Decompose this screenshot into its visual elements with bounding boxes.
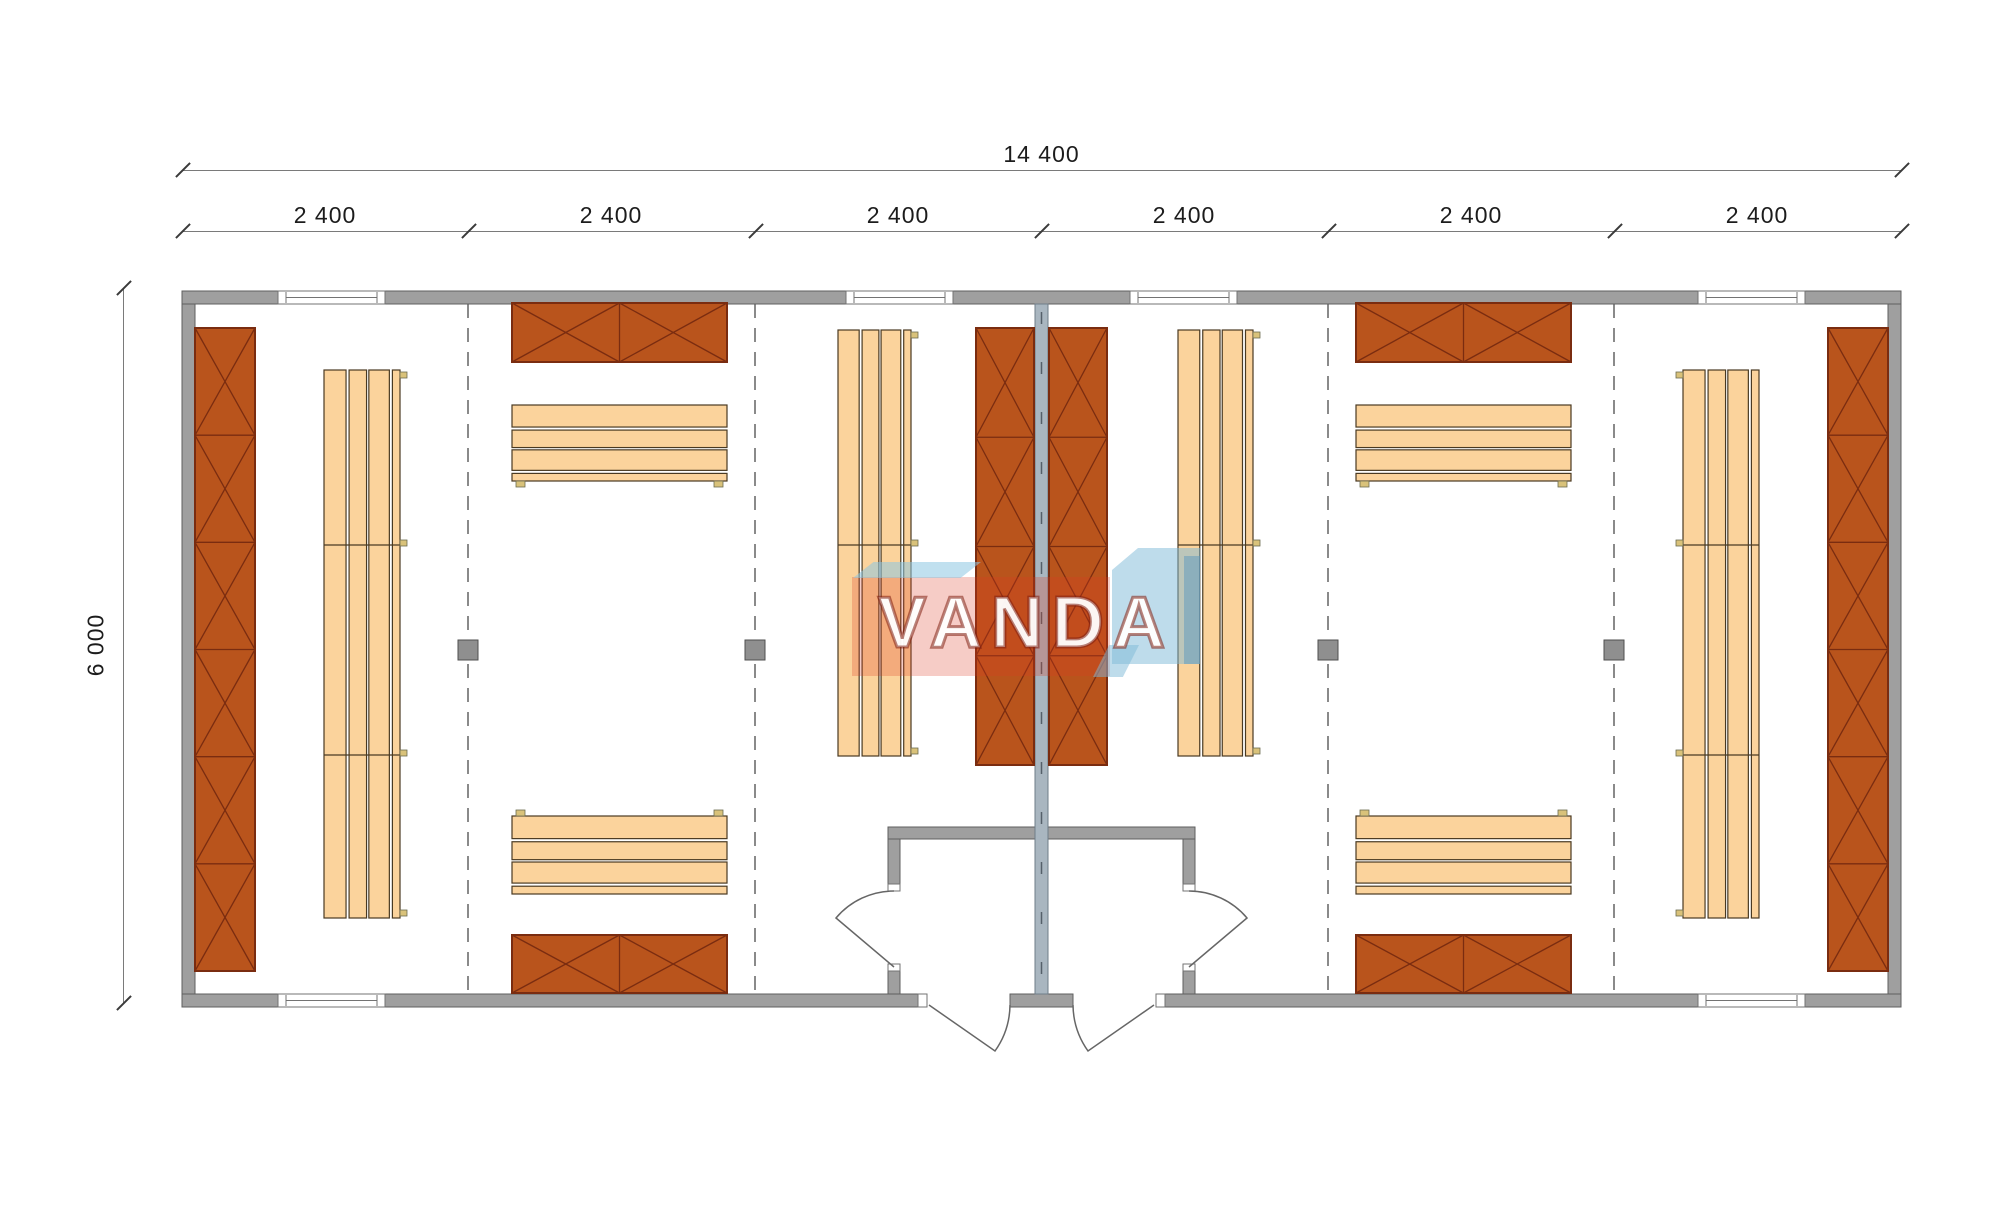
bench-slat — [1356, 450, 1571, 471]
bench-connector-tab — [1253, 332, 1260, 338]
bench-foot — [1360, 481, 1369, 487]
dimension-total-height-label: 6 000 — [83, 614, 110, 677]
bench-foot — [516, 810, 525, 816]
dimension-segment-label-6: 2 400 — [1614, 202, 1900, 229]
bench-slat — [349, 370, 366, 918]
column-post — [745, 640, 765, 660]
bench-slat — [881, 330, 901, 756]
bench-foot — [1558, 481, 1567, 487]
wall-segment — [182, 304, 195, 994]
bench-slat — [1222, 330, 1242, 756]
wall-segment — [1010, 994, 1073, 1007]
bench-slat — [862, 330, 879, 756]
door-swing — [1189, 891, 1247, 967]
dimension-segment-label-4: 2 400 — [1041, 202, 1327, 229]
bench-connector-tab — [911, 332, 918, 338]
dimension-segment-label-1: 2 400 — [182, 202, 468, 229]
bench-slat — [1356, 473, 1571, 481]
bench-connector-tab — [1676, 750, 1683, 756]
bench-slat — [1203, 330, 1220, 756]
bench-foot — [714, 481, 723, 487]
bench-slat — [1356, 816, 1571, 839]
bench-connector-tab — [1676, 372, 1683, 378]
bench-slat — [392, 370, 400, 918]
wall-segment — [1888, 304, 1901, 994]
bench-slat — [1246, 330, 1254, 756]
bench-slat — [1356, 405, 1571, 427]
door-swing — [929, 1005, 1010, 1051]
bench-slat — [1751, 370, 1759, 918]
wall-segment — [888, 839, 900, 884]
bench-foot — [1360, 810, 1369, 816]
dimension-segment-label-2: 2 400 — [468, 202, 754, 229]
bench-slat — [324, 370, 346, 918]
bench-connector-tab — [400, 540, 407, 546]
bench-slat — [1708, 370, 1725, 918]
bench-foot — [1558, 810, 1567, 816]
bench-slat — [512, 473, 727, 481]
bench-foot — [714, 810, 723, 816]
door-jamb — [888, 884, 900, 891]
bench-slat — [512, 816, 727, 839]
bench-slat — [1356, 430, 1571, 447]
column-post — [1604, 640, 1624, 660]
door-jamb — [1183, 964, 1195, 971]
bench-connector-tab — [1253, 540, 1260, 546]
partition-wall — [1035, 304, 1048, 994]
dimension-line-total-height — [123, 288, 124, 1003]
dimension-segment-label-5: 2 400 — [1328, 202, 1614, 229]
door-swing — [836, 891, 894, 967]
bench-slat — [512, 405, 727, 427]
bench-connector-tab — [1676, 540, 1683, 546]
wall-segment — [888, 971, 900, 994]
dimension-segment-label-3: 2 400 — [755, 202, 1041, 229]
door-jamb — [888, 964, 900, 971]
bench-slat — [838, 330, 859, 756]
bench-slat — [1356, 886, 1571, 894]
door-jamb — [1183, 884, 1195, 891]
bench-slat — [1178, 330, 1200, 756]
wall-segment — [1183, 971, 1195, 994]
bench-slat — [904, 330, 911, 756]
bench-slat — [512, 862, 727, 883]
bench-slat — [1683, 370, 1705, 918]
door-jamb — [918, 994, 927, 1007]
bench-slat — [1356, 842, 1571, 860]
bench-slat — [512, 430, 727, 447]
bench-slat — [1356, 862, 1571, 883]
wall-segment — [1183, 839, 1195, 884]
bench-connector-tab — [1253, 748, 1260, 754]
column-post — [458, 640, 478, 660]
bench-connector-tab — [400, 372, 407, 378]
bench-slat — [1728, 370, 1749, 918]
column-post — [1318, 640, 1338, 660]
floor-plan-canvas: 14 400 2 400 2 400 2 400 2 400 2 400 2 4… — [0, 0, 2000, 1226]
bench-connector-tab — [911, 540, 918, 546]
bench-connector-tab — [400, 910, 407, 916]
bench-foot — [516, 481, 525, 487]
dimension-total-width-label: 14 400 — [182, 141, 1901, 168]
dimension-line-total-width — [182, 170, 1901, 171]
bench-slat — [369, 370, 390, 918]
door-jamb — [1156, 994, 1165, 1007]
bench-slat — [512, 450, 727, 471]
bench-connector-tab — [911, 748, 918, 754]
wall-segment — [182, 291, 1901, 304]
bench-connector-tab — [400, 750, 407, 756]
bench-connector-tab — [1676, 910, 1683, 916]
bench-slat — [512, 886, 727, 894]
floor-plan-drawing — [0, 0, 2000, 1226]
bench-slat — [512, 842, 727, 860]
door-swing — [1073, 1005, 1154, 1051]
